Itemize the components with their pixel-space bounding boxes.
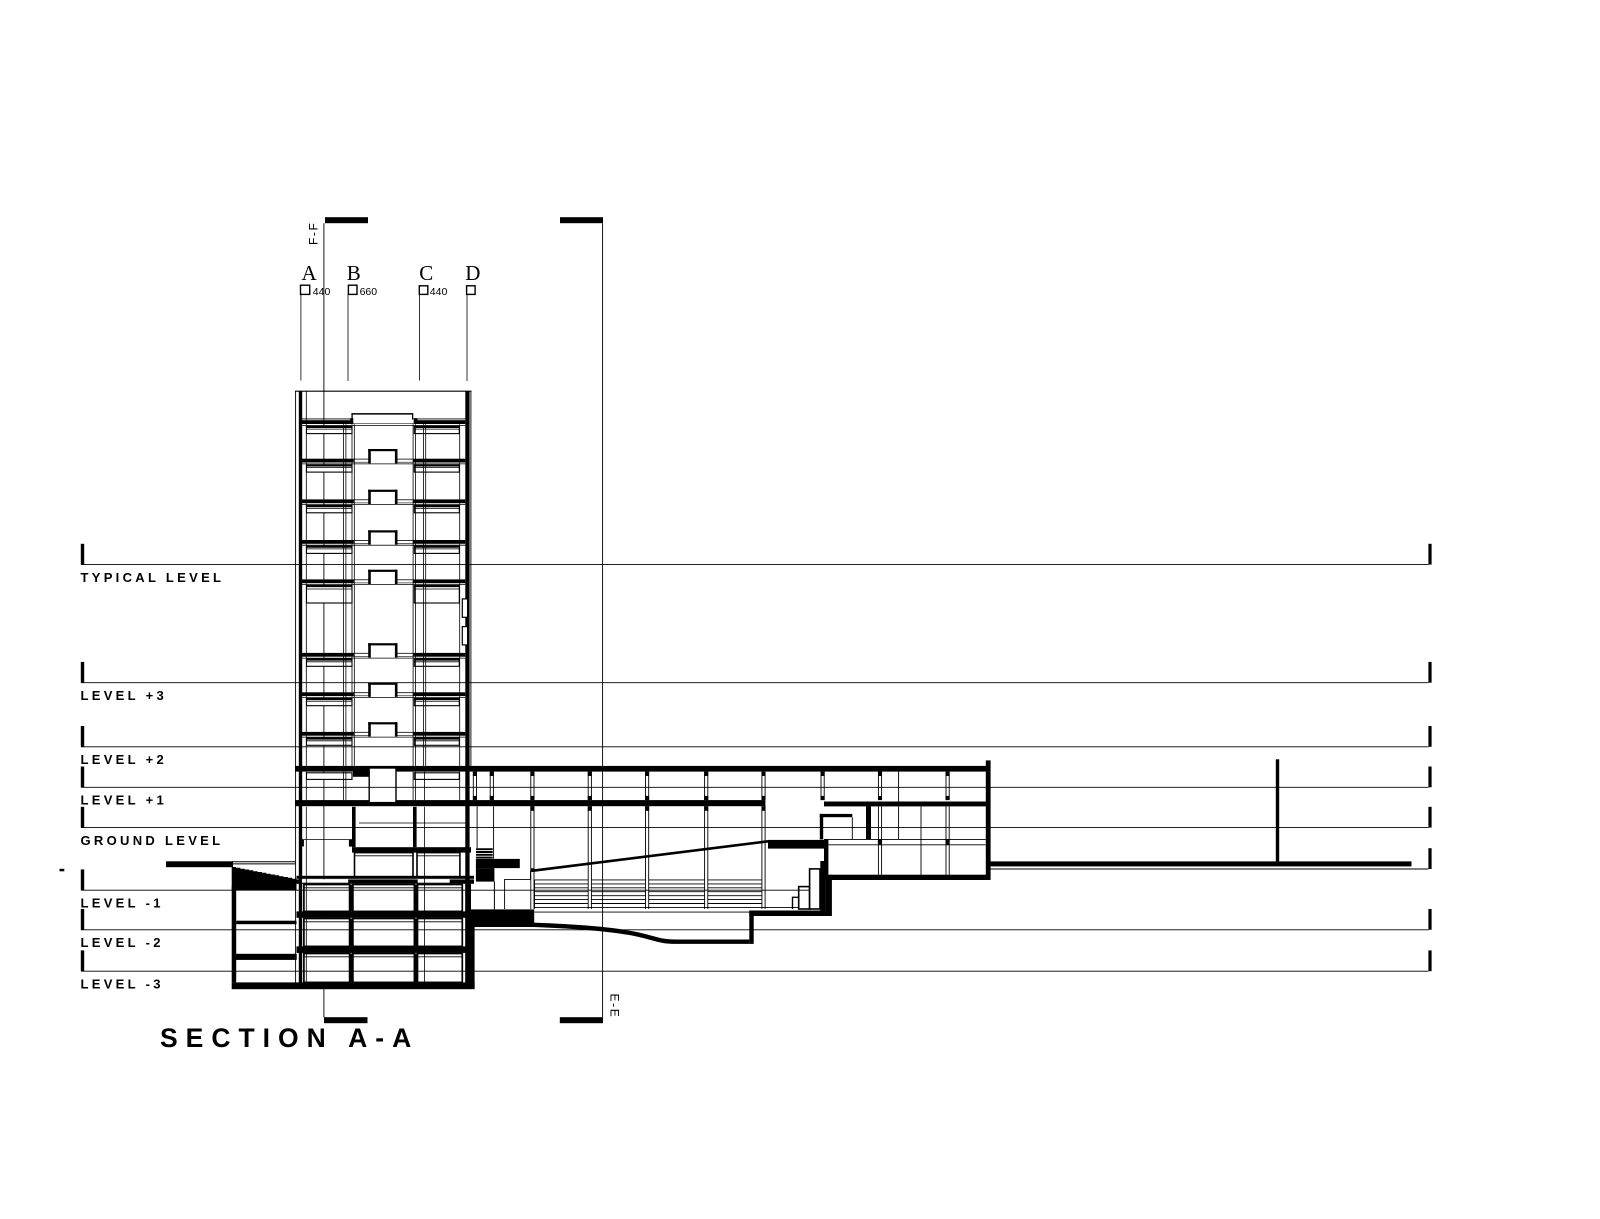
svg-text:440: 440 bbox=[313, 286, 331, 298]
svg-text:GROUND LEVEL: GROUND LEVEL bbox=[81, 833, 224, 848]
svg-text:F-F: F-F bbox=[307, 222, 321, 245]
svg-text:LEVEL +2: LEVEL +2 bbox=[81, 752, 168, 767]
svg-text:LEVEL +3: LEVEL +3 bbox=[81, 688, 168, 703]
svg-text:SECTION A-A: SECTION A-A bbox=[160, 1023, 419, 1053]
svg-text:LEVEL -1: LEVEL -1 bbox=[81, 896, 164, 911]
svg-text:LEVEL +1: LEVEL +1 bbox=[81, 793, 168, 808]
svg-text:A: A bbox=[302, 261, 318, 285]
svg-text:LEVEL -3: LEVEL -3 bbox=[81, 977, 164, 992]
svg-text:LEVEL -2: LEVEL -2 bbox=[81, 935, 164, 950]
svg-text:660: 660 bbox=[360, 286, 378, 298]
svg-text:C: C bbox=[419, 261, 433, 285]
svg-text:440: 440 bbox=[430, 286, 448, 298]
svg-text:TYPICAL LEVEL: TYPICAL LEVEL bbox=[81, 570, 225, 585]
svg-text:E-E: E-E bbox=[608, 994, 622, 1019]
svg-text:D: D bbox=[465, 261, 480, 285]
svg-text:B: B bbox=[347, 261, 361, 285]
